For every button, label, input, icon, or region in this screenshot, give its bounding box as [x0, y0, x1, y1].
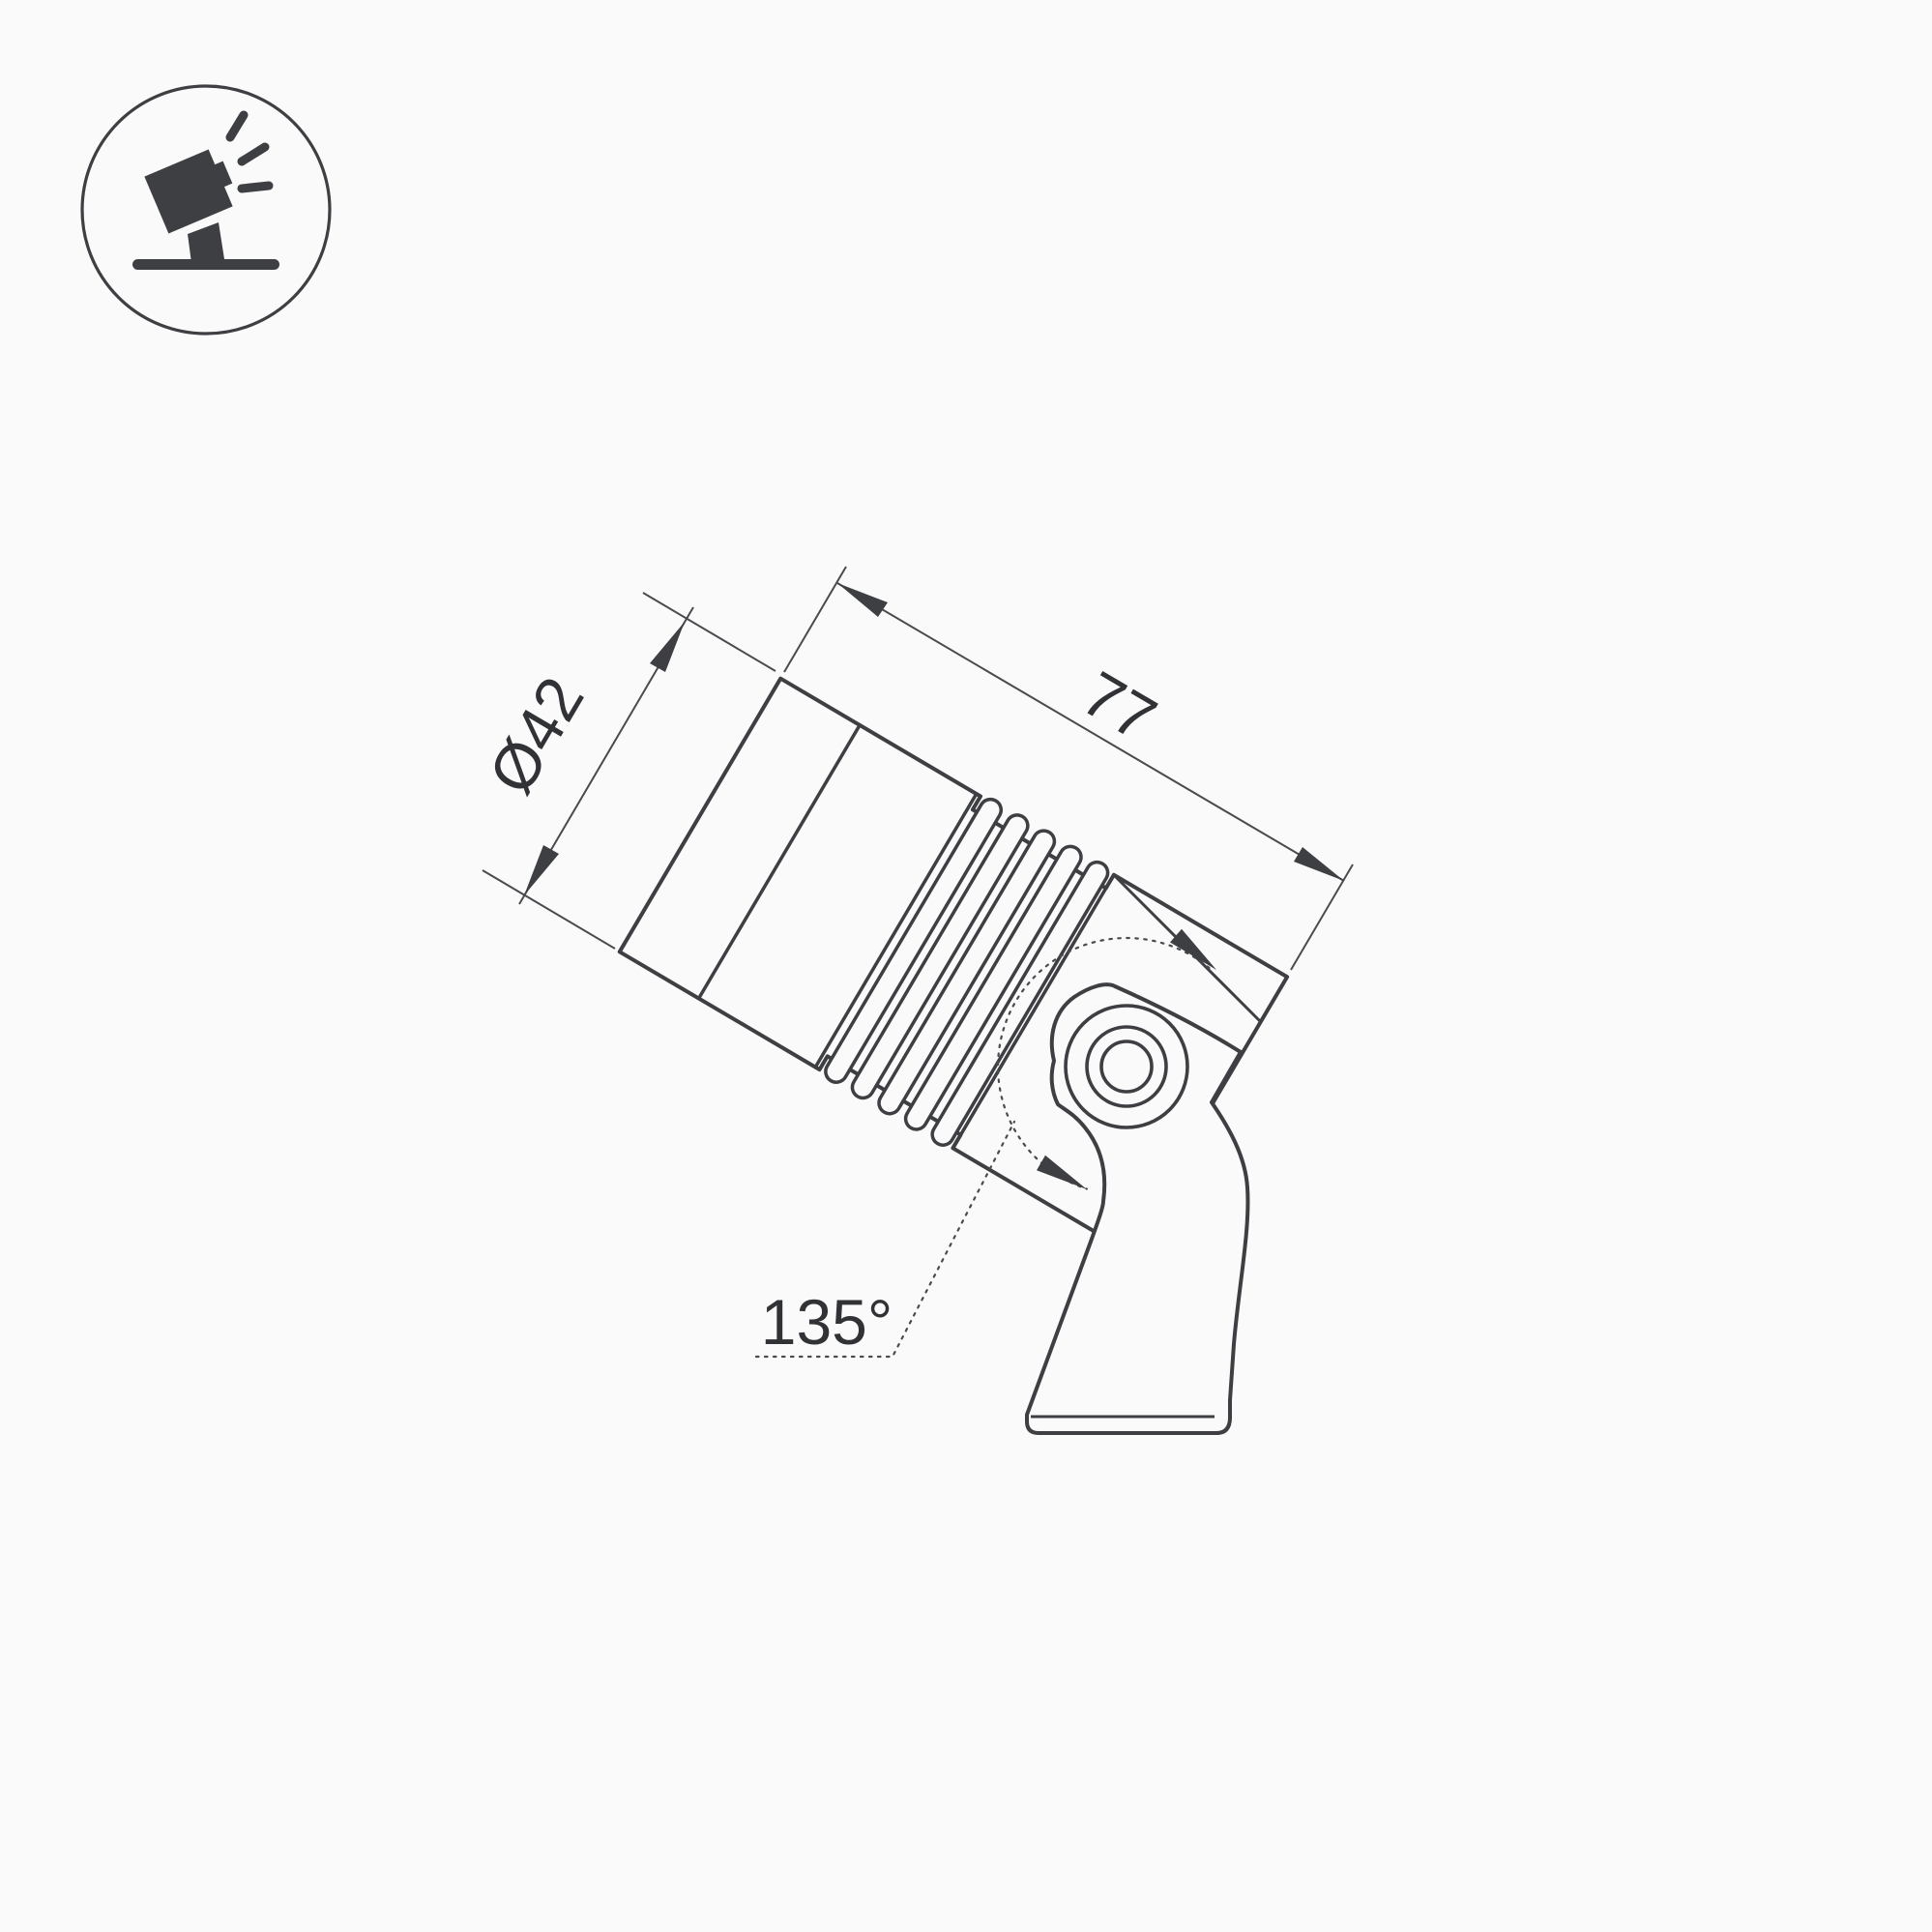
technical-drawing-page: 135° Ø42 77	[0, 0, 1932, 1932]
length-arrow-right	[1294, 847, 1344, 881]
icon-spotlight-stem	[188, 222, 224, 263]
icon-ground-bar	[132, 259, 279, 270]
angle-label: 135°	[761, 1286, 893, 1358]
diameter-arrow-bottom	[524, 845, 559, 895]
icon-light-rays	[230, 115, 269, 189]
diameter-arrow-top	[650, 622, 685, 672]
icon-spotlight-head	[144, 146, 241, 234]
length-extension-line-left	[784, 567, 846, 672]
length-label: 77	[1070, 658, 1168, 755]
diameter-extension-line-bottom	[483, 870, 615, 949]
tilt-spotlight-icon	[82, 86, 330, 334]
drawing-canvas: 135° Ø42 77	[0, 0, 1932, 1932]
diameter-label: Ø42	[475, 665, 598, 805]
length-arrow-left	[837, 583, 888, 617]
